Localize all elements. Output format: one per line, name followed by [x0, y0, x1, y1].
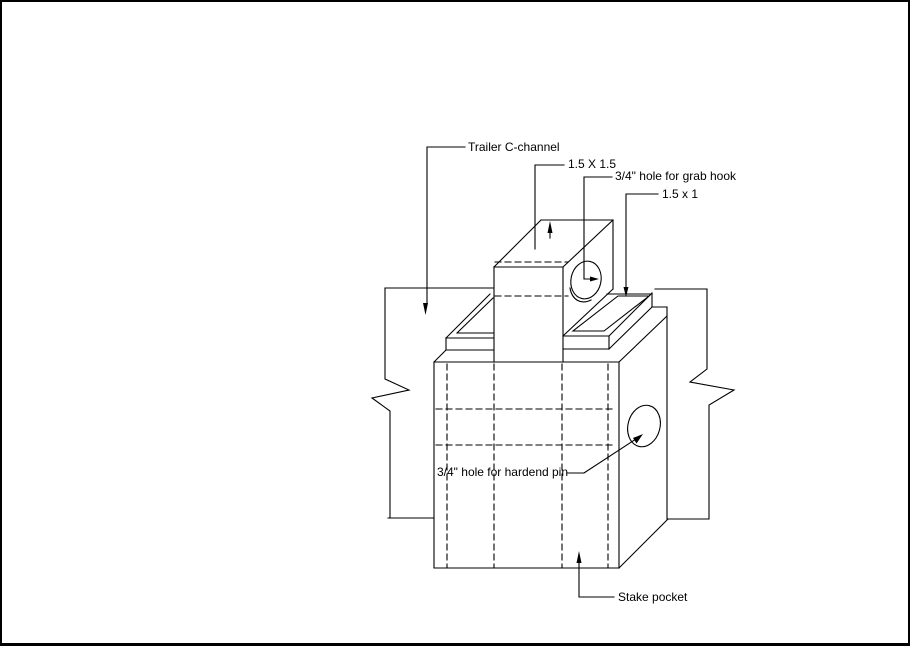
hidden-lines [436, 262, 616, 568]
label-hardend-pin-hole: 3/4" hole for hardend pin [437, 466, 568, 478]
grab-hook-hole [567, 258, 604, 302]
label-stake-pocket: Stake pocket [618, 591, 687, 603]
leader-hardend-pin-hole [567, 434, 643, 473]
collar-plate-left [446, 294, 493, 350]
arrowhead [577, 551, 582, 563]
arrowhead [633, 434, 643, 444]
leader-tube-size [535, 165, 564, 249]
c-channel-outline [372, 288, 734, 519]
label-plate-size: 1.5 x 1 [662, 188, 698, 200]
leader-trailer-c-channel [423, 147, 465, 315]
label-trailer-c-channel: Trailer C-channel [468, 141, 560, 153]
leader-plate-size [624, 194, 659, 297]
drawing-sheet: Trailer C-channel 1.5 X 1.5 3/4" hole fo… [0, 0, 910, 646]
arrowhead [423, 303, 428, 315]
label-grab-hook-hole: 3/4" hole for grab hook [615, 170, 736, 182]
label-tube-size: 1.5 X 1.5 [568, 158, 616, 170]
arrowhead [548, 221, 553, 233]
drawing-svg [2, 2, 910, 646]
square-tube-bar [494, 220, 613, 362]
leader-grab-hook-hole [584, 177, 612, 282]
arrowhead [590, 277, 599, 282]
stake-pocket-body [434, 307, 668, 568]
